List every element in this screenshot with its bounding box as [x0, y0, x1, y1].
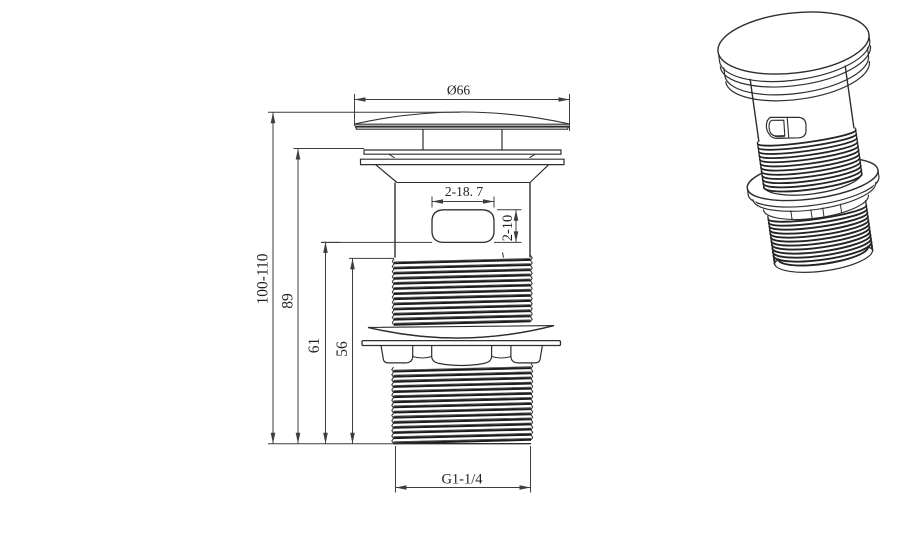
svg-text:61: 61: [306, 338, 323, 354]
svg-text:2-18. 7: 2-18. 7: [445, 184, 483, 199]
svg-text:2-10: 2-10: [500, 215, 516, 242]
svg-text:G1-1/4: G1-1/4: [441, 472, 483, 488]
svg-text:89: 89: [280, 293, 297, 309]
svg-text:Ø66: Ø66: [447, 83, 470, 98]
svg-text:56: 56: [334, 341, 351, 357]
svg-text:100-110: 100-110: [255, 253, 272, 304]
